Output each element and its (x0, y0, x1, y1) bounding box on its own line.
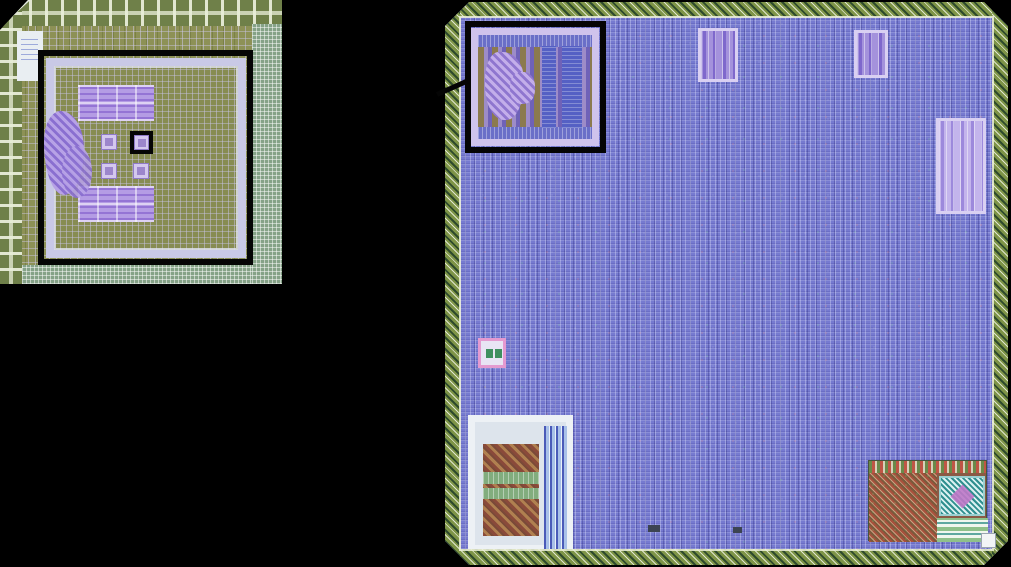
overview-bottom-pad-ring (22, 265, 252, 284)
fill-mark-1 (648, 525, 660, 532)
overview-die-photo (0, 0, 282, 284)
figure-canvas (0, 0, 1011, 567)
right-side-macro (936, 118, 986, 214)
pink-macro-green-chip-1 (486, 349, 493, 358)
memory-block (868, 460, 987, 541)
memory-top-strip (869, 461, 986, 473)
analog-brown-subblock (483, 444, 539, 536)
analog-blue-striped-column (544, 426, 567, 549)
memory-teal-crosshatch (939, 476, 985, 516)
pink-bordered-macro (478, 338, 506, 368)
white-framed-analog-block (468, 415, 573, 552)
memory-red-speckle-field (869, 473, 937, 542)
analog-green-band-2 (483, 488, 539, 499)
overview-right-pad-ring (252, 24, 282, 284)
zoom-pad-ring-bottom (445, 549, 1008, 565)
zoomed-die-photo (445, 2, 1008, 565)
zoom-pad-ring-top (445, 2, 1008, 17)
memory-diamond-mark (950, 484, 974, 508)
top-right-macro (854, 30, 888, 78)
pink-macro-green-chip-2 (495, 349, 502, 358)
macro-annotation-box (130, 131, 153, 154)
overview-top-pad-row (0, 0, 282, 26)
zoom-pad-ring-right (992, 2, 1008, 565)
top-middle-macro (698, 28, 738, 82)
logo-label-marks (21, 36, 38, 60)
zoom-annotation-box (465, 21, 606, 153)
core-annotation-box (38, 50, 253, 265)
fill-mark-2 (733, 527, 742, 533)
corner-white-pad (981, 533, 996, 548)
analog-green-band-1 (483, 472, 539, 484)
